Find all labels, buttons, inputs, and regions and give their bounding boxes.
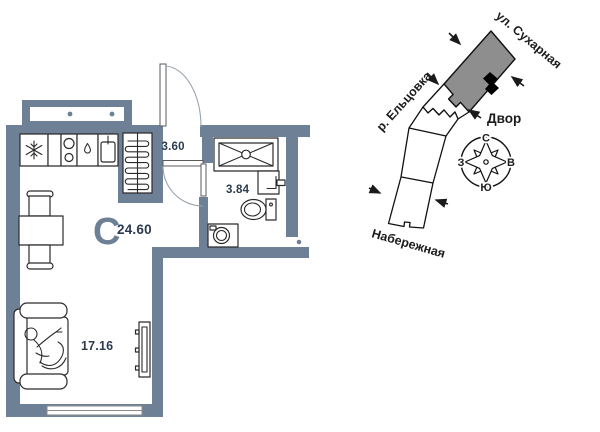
wardrobe-icon — [123, 133, 152, 193]
bay-window-dot — [68, 112, 73, 117]
stove-icon — [61, 134, 77, 166]
building-footprint — [389, 31, 516, 228]
arrow-icon — [512, 77, 524, 86]
wardrobe-bottom-wall — [118, 193, 163, 203]
interior-door — [163, 161, 203, 207]
dining-table-and-chairs — [19, 191, 63, 269]
fridge-icon — [20, 134, 48, 166]
arrow-icon — [449, 33, 460, 44]
kitchen — [20, 133, 152, 193]
bath-bottom-wall — [152, 247, 309, 258]
washbasin-icon — [258, 171, 285, 194]
chair-icon — [29, 245, 50, 264]
chair-icon — [29, 196, 50, 216]
embankment-label: Набережная — [370, 226, 447, 260]
chair-icon — [27, 263, 53, 269]
building-section-long — [389, 107, 459, 228]
washing-machine-icon — [208, 224, 238, 247]
living-room — [14, 191, 150, 389]
kitchen-divider-wall — [118, 133, 123, 193]
entry-door-arc — [166, 66, 201, 127]
bay-window-dot — [110, 112, 115, 117]
toilet-icon — [241, 199, 276, 220]
compass-south-label: Ю — [480, 182, 491, 194]
counter-with-drain — [77, 134, 98, 166]
arrow-icon — [369, 188, 380, 193]
courtyard-label: Двор — [487, 111, 521, 126]
compass-east-label: В — [507, 157, 515, 169]
site-plan: С Ю З В ул. Сухарная р. Ельцовка Двор На… — [369, 9, 564, 261]
arrow-icon — [469, 110, 481, 118]
bathroom-door-leaf — [201, 164, 206, 196]
total-area-label: 24.60 — [117, 222, 152, 237]
tv-icon — [136, 322, 151, 377]
interior-door-arc — [163, 166, 203, 206]
interior-door-leaf — [163, 161, 203, 167]
top-wall-right — [200, 125, 310, 137]
compass-west-label: З — [458, 157, 465, 169]
sink-icon — [98, 134, 118, 166]
floorplan-canvas: 3.60 3.84 C 24.60 17.16 — [0, 0, 600, 432]
bathroom-area-label: 3.84 — [226, 184, 250, 196]
right-wall — [286, 137, 298, 237]
bottom-window — [47, 406, 142, 415]
wardrobe-right-wall — [152, 125, 163, 203]
living-right-wall — [152, 247, 163, 417]
entry-door — [160, 64, 201, 127]
building-section-highlighted — [444, 31, 515, 112]
sofa-icon — [14, 303, 68, 389]
entry-door-leaf — [160, 64, 166, 126]
arrow-icon — [436, 200, 448, 204]
living-area-label: 17.16 — [81, 339, 113, 353]
compass-north-label: С — [482, 133, 490, 145]
bath-left-wall — [199, 197, 208, 247]
shower-icon — [214, 138, 278, 171]
wall-notch-dot — [297, 240, 302, 245]
table-icon — [19, 216, 63, 245]
hall-bath-wall — [202, 137, 213, 163]
hallway-area-label: 3.60 — [162, 141, 185, 153]
floorplan-page: 3.60 3.84 C 24.60 17.16 — [0, 0, 600, 432]
kitchen-cabinet — [48, 134, 61, 166]
floor-plan: 3.60 3.84 C 24.60 17.16 — [6, 64, 310, 417]
compass-rose: С Ю З В — [458, 133, 515, 195]
